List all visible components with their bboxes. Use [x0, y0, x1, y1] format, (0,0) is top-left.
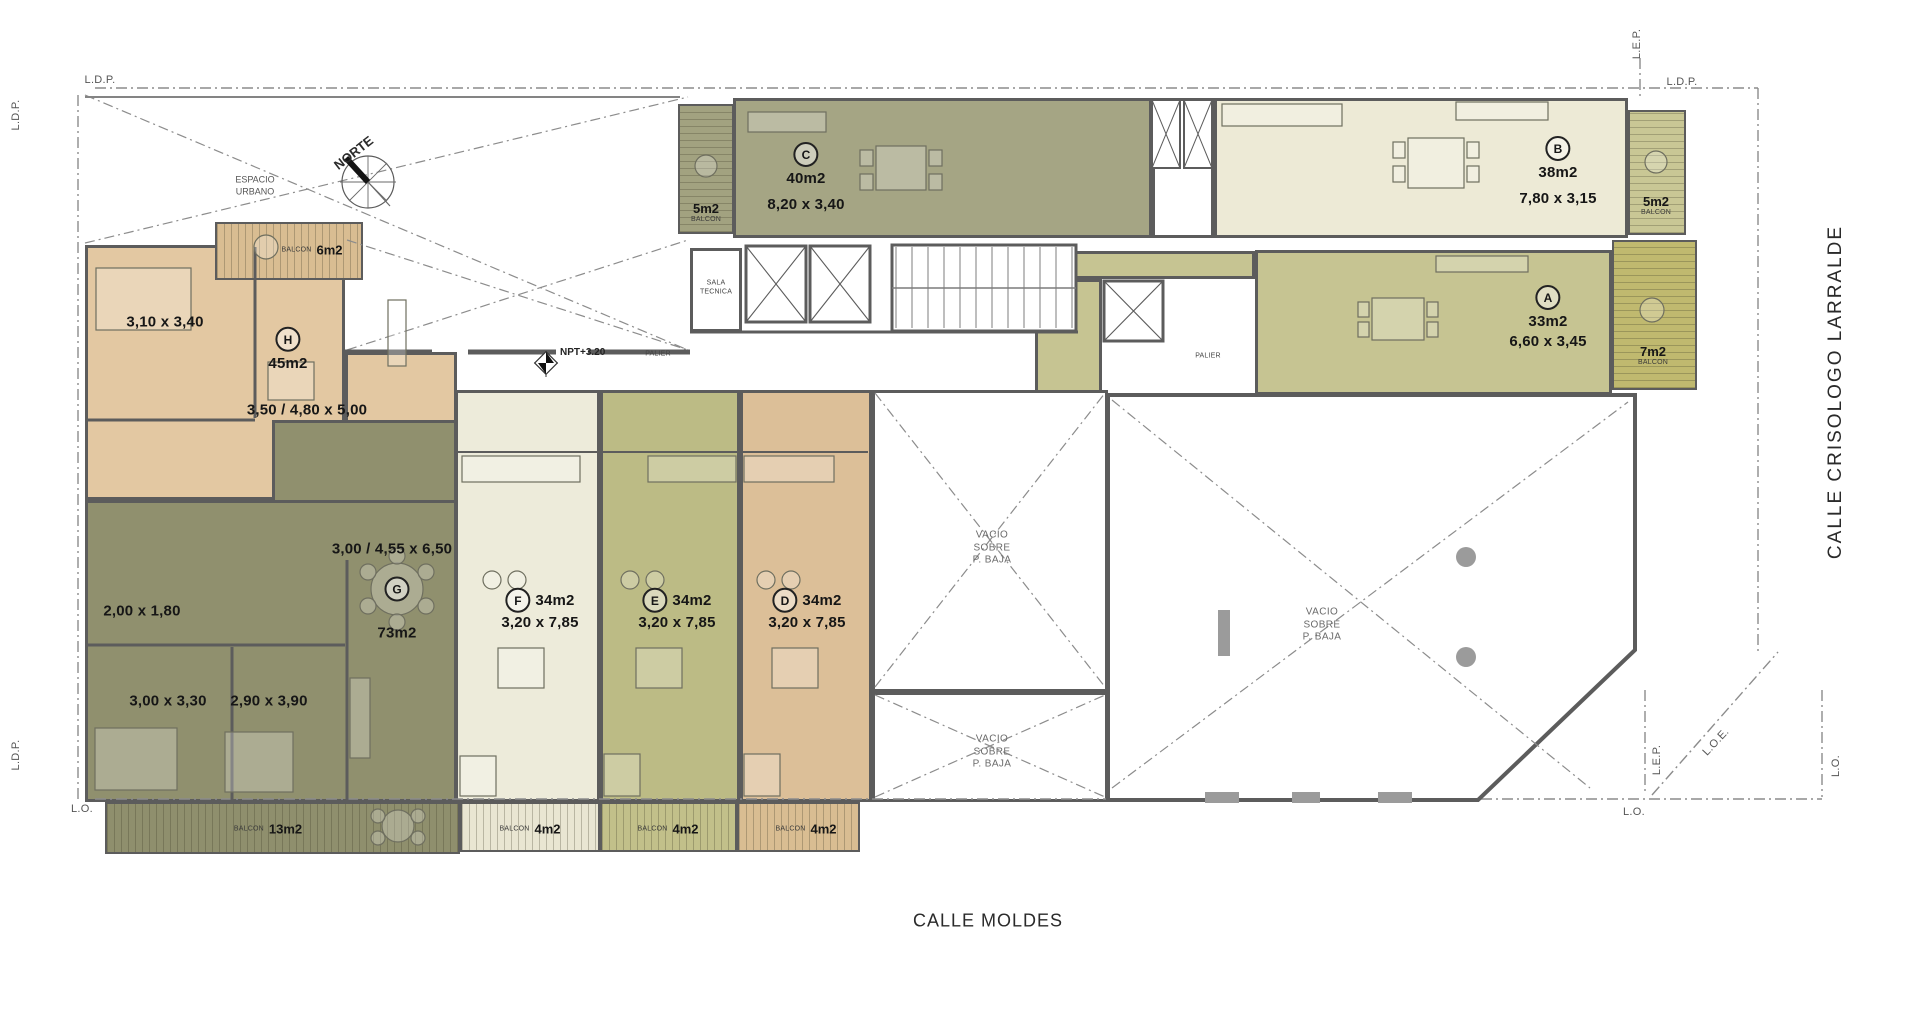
sala-tecnica-label: SALA TECNICA: [700, 279, 732, 298]
north-label: NORTE: [331, 133, 376, 173]
unit-f-letter: F: [505, 588, 530, 613]
unit-a-area: 33m2: [1509, 312, 1586, 332]
unit-b-letter: B: [1546, 136, 1571, 161]
palier-left-label: PALIER: [645, 349, 671, 358]
balcony-g-label: BALCON 13m2: [234, 822, 302, 837]
street-calle-moldes: CALLE MOLDES: [913, 911, 1063, 932]
structural-columns: [1205, 547, 1476, 803]
unit-e-label: E 34m2 3,20 x 7,85: [638, 588, 715, 633]
unit-b-dim: 7,80 x 3,15: [1519, 189, 1596, 209]
unit-e-letter: E: [642, 588, 667, 613]
unit-b-area: 38m2: [1519, 163, 1596, 183]
unit-c-area: 40m2: [767, 169, 844, 189]
lo-bottom-right: L.O.: [1623, 806, 1645, 818]
palier-right-label: PALIER: [1195, 351, 1221, 360]
void-label-right: VACIO SOBRE P. BAJA: [1303, 606, 1342, 644]
unit-a-letter: A: [1536, 285, 1561, 310]
npt-level-label: NPT+3.20: [560, 347, 605, 358]
unit-d-label: D 34m2 3,20 x 7,85: [768, 588, 845, 633]
unit-a-kitchen-strip: [1035, 251, 1255, 279]
balcony-a-label: 7m2 BALCON: [1638, 344, 1668, 366]
void-right-cross-lines: [1112, 400, 1628, 788]
unit-h-area: 45m2: [268, 354, 307, 374]
loe-bottom-right: L.O.E.: [1700, 726, 1731, 758]
balcony-f-label: BALCON 4m2: [499, 822, 560, 837]
unit-c-label: C 40m2 8,20 x 3,40: [767, 142, 844, 214]
unit-g-dim-bed1: 3,00 x 3,30: [129, 691, 206, 711]
unit-b-label: B 38m2 7,80 x 3,15: [1519, 136, 1596, 208]
lep-top-right: L.E.P.: [1631, 29, 1643, 59]
void-label-mid-upper: VACIO SOBRE P. BAJA: [973, 529, 1012, 567]
unit-g-dim-bed2: 2,90 x 3,90: [230, 691, 307, 711]
unit-d-letter: D: [772, 588, 797, 613]
ldp-left-lower: L.D.P.: [10, 740, 22, 771]
unit-g-label: G: [385, 577, 410, 604]
unit-f-label: F 34m2 3,20 x 7,85: [501, 588, 578, 633]
balcony-d-label: BALCON 4m2: [775, 822, 836, 837]
level-marker-icon: [534, 351, 558, 377]
unit-a-label: A 33m2 6,60 x 3,45: [1509, 285, 1586, 351]
ldp-top-left: L.D.P.: [85, 74, 116, 86]
unit-g-bath-block: [272, 420, 457, 503]
unit-h-dim-living: 3,50 / 4,80 x 5,00: [247, 400, 367, 420]
void-label-mid-lower: VACIO SOBRE P. BAJA: [973, 733, 1012, 771]
unit-g-dim-living: 3,00 / 4,55 x 6,50: [332, 539, 452, 559]
unit-d-dim: 3,20 x 7,85: [768, 613, 845, 633]
balcony-b-label: 5m2 BALCON: [1641, 194, 1671, 216]
balcony-e-label: BALCON 4m2: [637, 822, 698, 837]
ldp-left-upper: L.D.P.: [10, 100, 22, 131]
unit-c-letter: C: [794, 142, 819, 167]
unit-g-dim-hall: 2,00 x 1,80: [103, 601, 180, 621]
unit-f-dim: 3,20 x 7,85: [501, 613, 578, 633]
unit-e-area: 34m2: [672, 591, 711, 611]
floor-plan: NORTE: [0, 0, 1920, 1024]
unit-h-dim-bedroom: 3,10 x 3,40: [126, 312, 203, 332]
unit-a-dim: 6,60 x 3,45: [1509, 332, 1586, 352]
ldp-top-right: L.D.P.: [1667, 76, 1698, 88]
balcony-h-label: BALCON 6m2: [281, 243, 342, 258]
unit-g-letter: G: [385, 577, 410, 602]
balcony-a: [1612, 240, 1697, 390]
balcony-b: [1628, 110, 1686, 235]
unit-d-area: 34m2: [802, 591, 841, 611]
unit-e-dim: 3,20 x 7,85: [638, 613, 715, 633]
street-calle-crisologo-larralde: CALLE CRISOLOGO LARRALDE: [1825, 225, 1847, 559]
unit-a-bath-strip: [1035, 279, 1102, 394]
espacio-urbano-label: ESPACIO URBANO: [235, 174, 274, 197]
unit-f-area: 34m2: [535, 591, 574, 611]
north-compass: NORTE: [331, 133, 396, 208]
unit-c-dim: 8,20 x 3,40: [767, 195, 844, 215]
lep-bottom-right: L.E.P.: [1651, 745, 1663, 775]
balcony-c-label: 5m2 BALCON: [691, 201, 721, 223]
lo-bottom-left: L.O.: [71, 803, 93, 815]
shaft-zone: [1152, 98, 1214, 238]
void-right-outline: [1108, 395, 1635, 800]
unit-g-area: 73m2: [377, 623, 416, 643]
unit-h-label: H 45m2: [268, 327, 307, 374]
lo-right-vertical: L.O.: [1830, 755, 1842, 777]
unit-h-letter: H: [275, 327, 300, 352]
